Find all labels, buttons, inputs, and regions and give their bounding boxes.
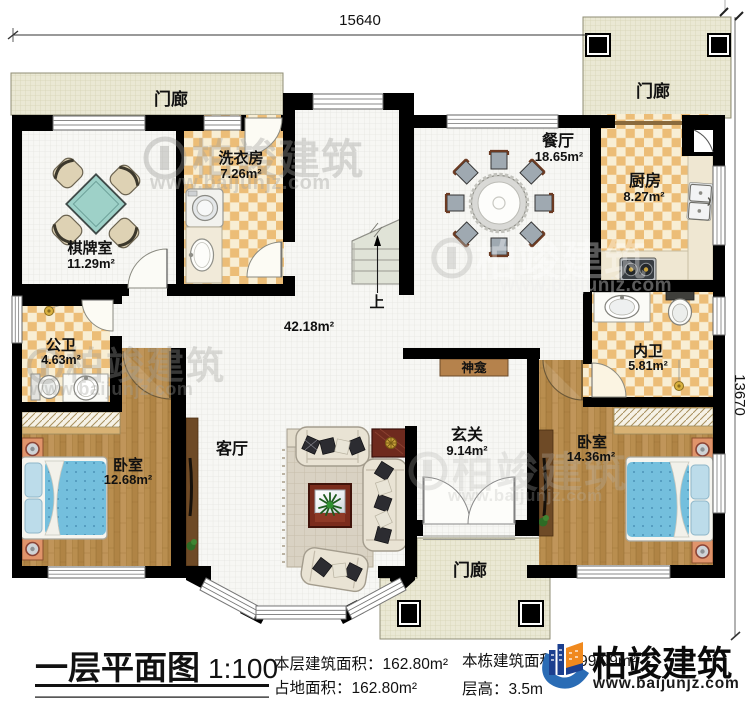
svg-text:4.63m²: 4.63m² <box>41 353 81 367</box>
svg-text:13670: 13670 <box>731 374 748 416</box>
svg-text:洗衣房: 洗衣房 <box>218 149 263 167</box>
svg-text:层高：3.5m: 层高：3.5m <box>462 680 543 698</box>
svg-text:门廊: 门廊 <box>453 560 487 580</box>
svg-text:餐厅: 餐厅 <box>541 131 574 150</box>
svg-text:本层建筑面积：162.80m²: 本层建筑面积：162.80m² <box>274 655 448 673</box>
svg-text:42.18m²: 42.18m² <box>284 319 335 334</box>
svg-text:www.baijunjz.com: www.baijunjz.com <box>29 379 193 399</box>
svg-text:7.26m²: 7.26m² <box>220 166 262 181</box>
svg-text:厨房: 厨房 <box>629 171 661 190</box>
svg-text:上: 上 <box>369 294 384 311</box>
svg-text:8.27m²: 8.27m² <box>623 189 665 204</box>
svg-text:玄关: 玄关 <box>451 425 483 444</box>
svg-text:5.81m²: 5.81m² <box>628 359 668 373</box>
svg-text:1:100: 1:100 <box>208 653 278 684</box>
svg-text:内卫: 内卫 <box>633 342 663 360</box>
svg-text:www.baijunjz.com: www.baijunjz.com <box>447 486 603 505</box>
svg-text:门廊: 门廊 <box>636 81 670 101</box>
svg-text:12.68m²: 12.68m² <box>104 472 153 487</box>
svg-text:一层平面图: 一层平面图 <box>35 649 200 686</box>
svg-text:www.baijunjz.com: www.baijunjz.com <box>499 275 672 296</box>
svg-text:神龛: 神龛 <box>461 360 487 375</box>
svg-text:公卫: 公卫 <box>46 337 76 354</box>
svg-text:9.14m²: 9.14m² <box>446 443 488 458</box>
svg-text:11.29m²: 11.29m² <box>67 256 115 271</box>
svg-text:门廊: 门廊 <box>154 89 188 109</box>
svg-text:14.36m²: 14.36m² <box>567 449 616 464</box>
svg-text:客厅: 客厅 <box>216 439 248 458</box>
svg-text:www.baijunjz.com: www.baijunjz.com <box>592 675 740 692</box>
svg-text:棋牌室: 棋牌室 <box>67 239 112 257</box>
svg-text:占地面积：162.80m²: 占地面积：162.80m² <box>274 679 417 697</box>
svg-text:15640: 15640 <box>339 12 381 29</box>
svg-text:18.65m²: 18.65m² <box>535 149 584 164</box>
